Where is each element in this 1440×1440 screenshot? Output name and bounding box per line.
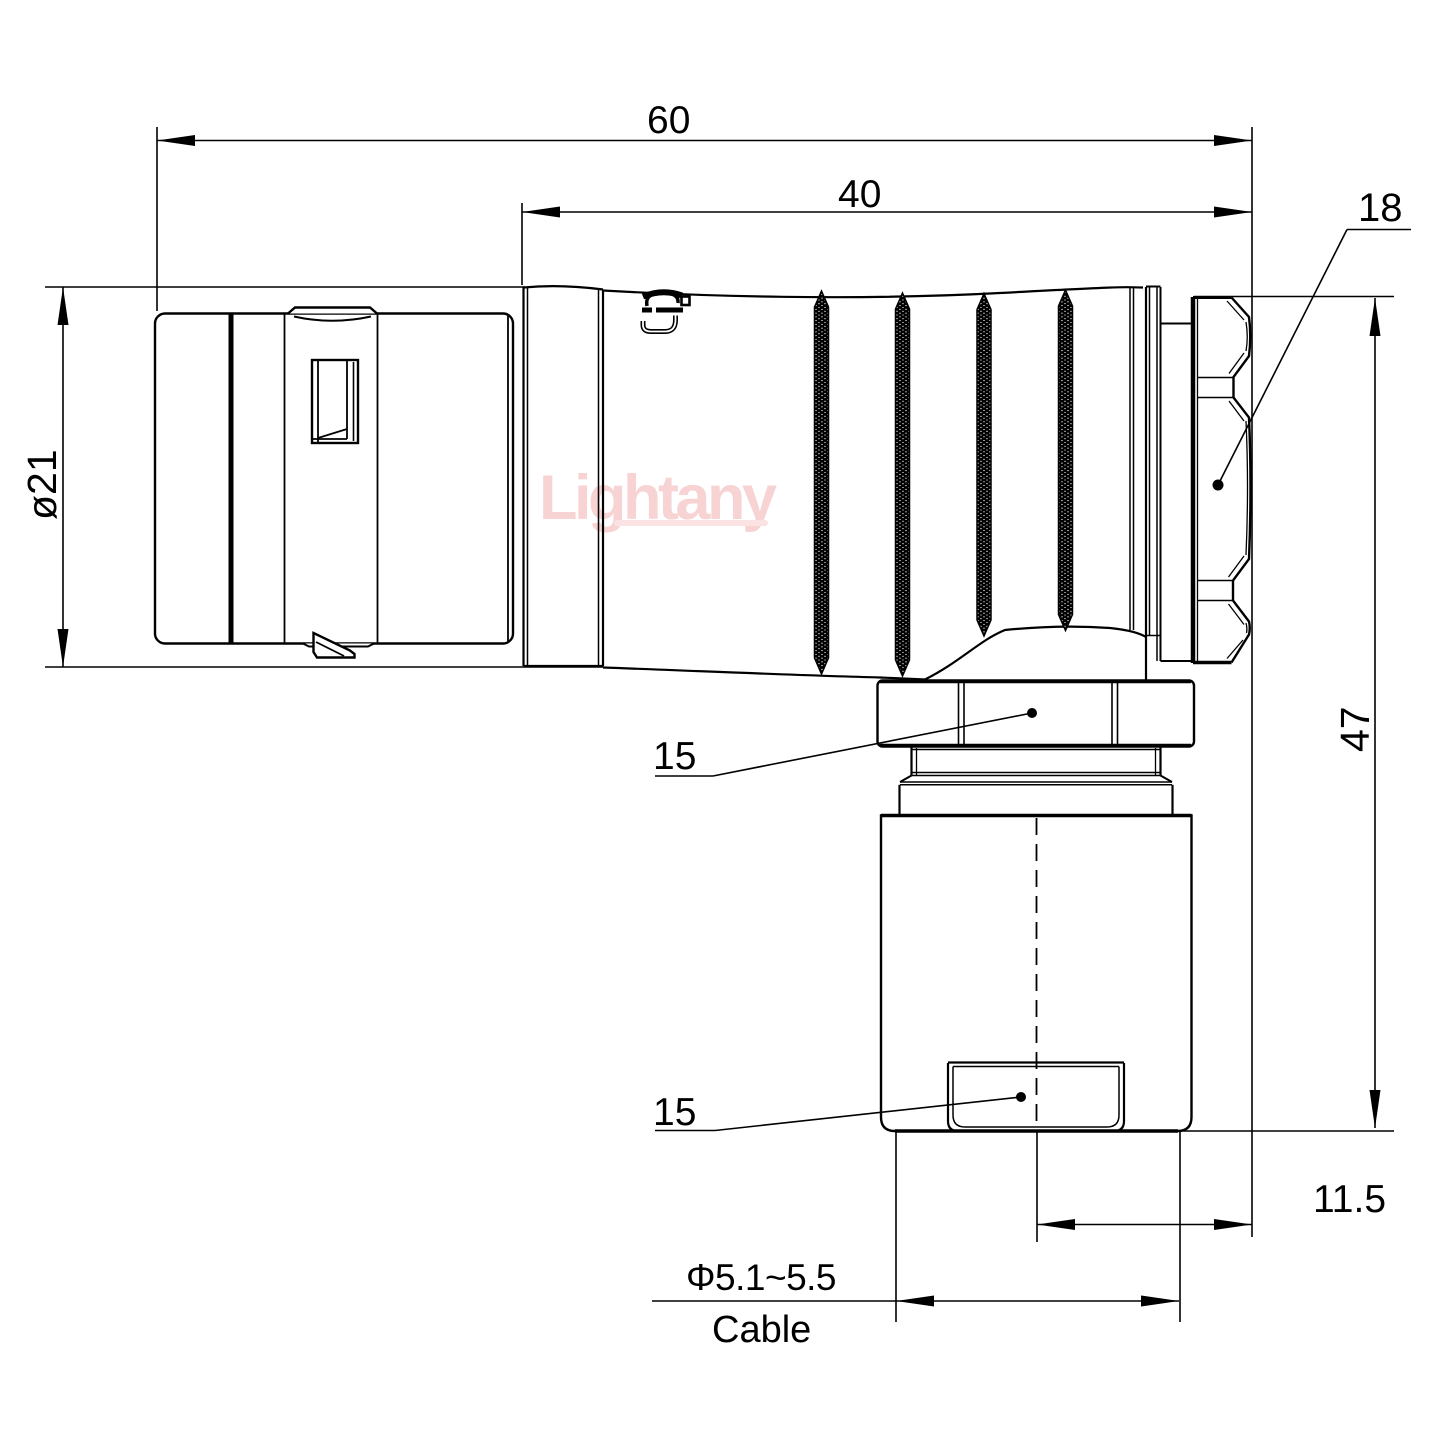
svg-text:11.5: 11.5	[1313, 1178, 1386, 1221]
svg-text:15: 15	[653, 735, 696, 778]
svg-text:40: 40	[838, 173, 881, 216]
svg-text:47: 47	[1332, 706, 1378, 752]
svg-text:Φ5.1~5.5: Φ5.1~5.5	[686, 1257, 836, 1298]
svg-text:60: 60	[647, 99, 690, 142]
svg-text:15: 15	[653, 1091, 696, 1134]
svg-text:ø21: ø21	[19, 449, 65, 520]
svg-text:Cable: Cable	[712, 1309, 811, 1351]
svg-text:18: 18	[1358, 186, 1403, 230]
